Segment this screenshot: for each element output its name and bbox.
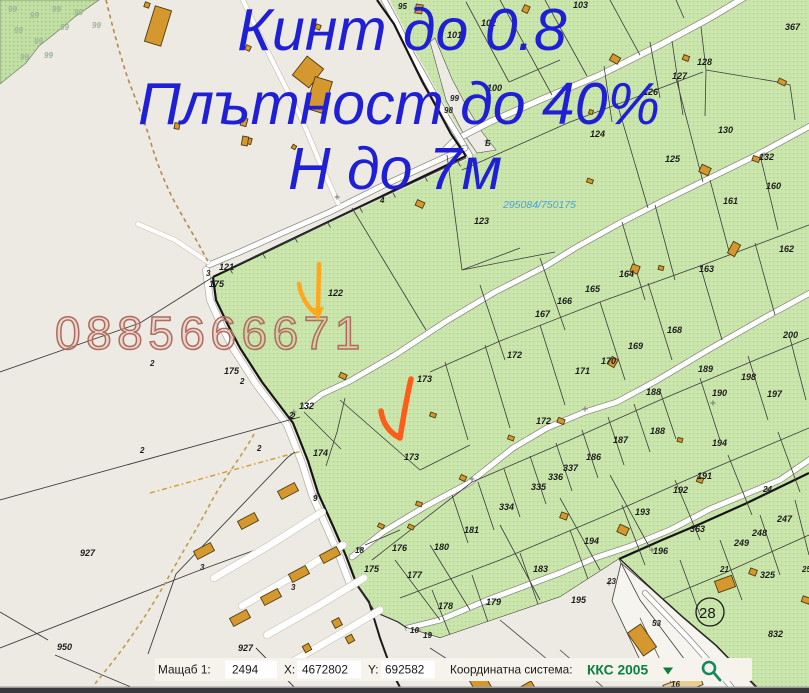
svg-text:248: 248 [751, 528, 767, 538]
svg-text:175: 175 [364, 564, 380, 574]
svg-text:99: 99 [30, 11, 39, 20]
svg-text:169: 169 [628, 341, 643, 351]
svg-text:179: 179 [486, 597, 501, 607]
svg-text:28: 28 [699, 605, 716, 622]
svg-text:166: 166 [557, 296, 573, 306]
svg-text:190: 190 [712, 388, 727, 398]
svg-text:Мащаб 1:: Мащаб 1: [158, 663, 211, 677]
svg-text:193: 193 [635, 507, 650, 517]
svg-text:170: 170 [601, 356, 616, 366]
svg-text:186: 186 [586, 452, 602, 462]
svg-text:99: 99 [52, 5, 61, 14]
svg-text:165: 165 [585, 284, 601, 294]
svg-text:23: 23 [606, 577, 616, 586]
svg-text:122: 122 [328, 288, 343, 298]
svg-text:173: 173 [404, 452, 419, 462]
svg-text:336: 336 [548, 472, 564, 482]
svg-text:171: 171 [575, 366, 590, 376]
svg-text:335: 335 [531, 482, 547, 492]
svg-text:2: 2 [139, 446, 145, 455]
svg-text:X:: X: [284, 663, 295, 677]
svg-text:25: 25 [801, 565, 809, 574]
svg-text:295084/750175: 295084/750175 [502, 199, 576, 211]
svg-text:132: 132 [759, 152, 774, 162]
svg-text:247: 247 [776, 514, 793, 524]
svg-text:121: 121 [219, 262, 234, 272]
svg-text:125: 125 [665, 154, 681, 164]
svg-text:123: 123 [474, 216, 489, 226]
svg-text:187: 187 [613, 435, 629, 445]
svg-text:3: 3 [291, 583, 296, 592]
svg-text:2494: 2494 [232, 663, 259, 677]
svg-text:183: 183 [533, 564, 548, 574]
svg-text:367: 367 [785, 22, 801, 32]
svg-text:2: 2 [256, 444, 262, 453]
svg-text:175: 175 [224, 366, 240, 376]
svg-text:9: 9 [313, 494, 318, 503]
svg-text:3: 3 [206, 269, 211, 278]
svg-text:Кинт до 0.8: Кинт до 0.8 [237, 0, 567, 63]
svg-text:188: 188 [650, 426, 665, 436]
svg-text:2: 2 [290, 412, 296, 421]
svg-text:194: 194 [584, 536, 599, 546]
svg-text:189: 189 [698, 364, 713, 374]
svg-text:173: 173 [417, 374, 432, 384]
svg-text:162: 162 [779, 244, 794, 254]
svg-text:99: 99 [20, 53, 29, 62]
svg-text:177: 177 [407, 570, 423, 580]
svg-text:Н до 7м: Н до 7м [288, 136, 502, 202]
svg-text:99: 99 [60, 23, 69, 32]
svg-text:99: 99 [74, 8, 83, 17]
svg-text:99: 99 [92, 21, 101, 30]
svg-text:692582: 692582 [385, 663, 424, 677]
svg-text:ККС 2005: ККС 2005 [587, 663, 648, 678]
svg-text:103: 103 [573, 0, 588, 10]
svg-text:130: 130 [718, 125, 733, 135]
svg-text:198: 198 [741, 372, 756, 382]
svg-text:163: 163 [699, 264, 714, 274]
svg-text:128: 128 [697, 57, 712, 67]
svg-text:19: 19 [423, 631, 432, 640]
svg-text:249: 249 [733, 538, 749, 548]
svg-text:168: 168 [667, 325, 682, 335]
svg-text:950: 950 [57, 642, 72, 652]
svg-text:3: 3 [200, 563, 205, 572]
svg-text:176: 176 [392, 543, 408, 553]
svg-text:24: 24 [762, 485, 772, 494]
svg-text:Y:: Y: [368, 663, 379, 677]
svg-text:174: 174 [313, 448, 328, 458]
svg-text:172: 172 [536, 416, 551, 426]
svg-text:192: 192 [673, 485, 688, 495]
svg-text:164: 164 [619, 269, 634, 279]
svg-text:194: 194 [712, 438, 727, 448]
svg-text:167: 167 [535, 309, 551, 319]
svg-text:99: 99 [8, 5, 17, 14]
svg-text:160: 160 [766, 181, 781, 191]
svg-text:172: 172 [507, 350, 522, 360]
svg-text:178: 178 [438, 601, 453, 611]
svg-text:4672802: 4672802 [302, 663, 348, 677]
svg-text:363: 363 [690, 524, 705, 534]
svg-text:10: 10 [410, 626, 419, 635]
svg-text:337: 337 [563, 463, 579, 473]
svg-text:180: 180 [434, 542, 449, 552]
svg-text:21: 21 [719, 565, 729, 574]
svg-text:181: 181 [464, 525, 479, 535]
svg-text:196: 196 [653, 546, 669, 556]
svg-text:99: 99 [14, 26, 23, 35]
svg-text:334: 334 [499, 502, 514, 512]
svg-text:175: 175 [209, 279, 225, 289]
svg-text:927: 927 [238, 643, 254, 653]
svg-text:832: 832 [768, 629, 783, 639]
svg-text:Плътност до 40%: Плътност до 40% [138, 71, 660, 137]
svg-text:2: 2 [239, 377, 245, 386]
svg-text:132: 132 [299, 401, 314, 411]
svg-text:191: 191 [697, 471, 712, 481]
svg-text:53: 53 [652, 619, 661, 628]
svg-text:927: 927 [80, 548, 96, 558]
svg-text:99: 99 [34, 37, 43, 46]
svg-text:197: 197 [767, 389, 783, 399]
svg-text:161: 161 [723, 196, 738, 206]
svg-text:325: 325 [760, 570, 776, 580]
svg-text:2: 2 [149, 359, 155, 368]
svg-text:18: 18 [355, 546, 364, 555]
svg-text:99: 99 [44, 51, 53, 60]
svg-text:127: 127 [672, 71, 688, 81]
svg-text:200: 200 [782, 330, 798, 340]
svg-text:195: 195 [571, 595, 587, 605]
svg-text:Координатна система:: Координатна система: [450, 663, 573, 677]
svg-text:188: 188 [646, 387, 661, 397]
